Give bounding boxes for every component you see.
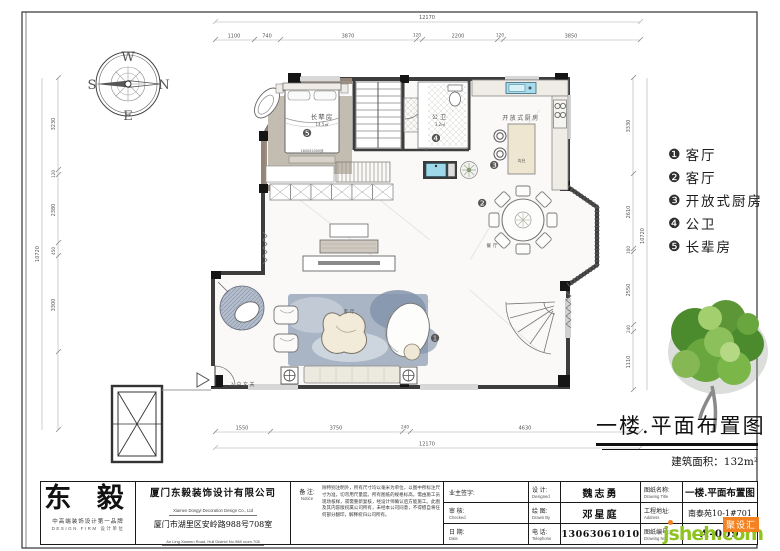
project-address-label: 工程地址:	[644, 506, 682, 515]
watermark-badge: 聚设汇	[723, 517, 759, 532]
elevator	[112, 386, 211, 462]
telephone-label: 电 话:	[532, 527, 560, 536]
dim-bottom-seg: 4630	[519, 426, 532, 432]
dim-left-seg: 3230	[51, 118, 57, 131]
kitchen-island: 岛台	[508, 124, 535, 174]
room-legend: ❶ 客厅 ❷ 客厅 ❸ 开放式厨房 ❹ 公卫 ❺ 长辈房	[668, 146, 763, 261]
firm-logo-cell: 东 毅 中高端装饰设计第一品牌 DESIGN FIRM 设计单位	[41, 482, 136, 544]
dim-right-total: 10720	[640, 228, 646, 244]
notice-text: 除特别注明外，所有尺寸均以毫米为单位，以图中所标注尺寸为准，切勿用尺量度。所有图…	[320, 485, 440, 541]
title-block: 东 毅 中高端装饰设计第一品牌 DESIGN FIRM 设计单位 厦门东毅装饰设…	[40, 481, 758, 545]
drawing-title-block: 一楼.平面布置图 建筑面积：132m²	[596, 410, 758, 469]
room-label-living: 客厅	[344, 308, 357, 315]
watermark-dot-icon	[668, 520, 673, 525]
dim-left-seg: 450	[51, 247, 56, 255]
legend-item: ❶ 客厅	[668, 146, 763, 162]
room-label-dining: 餐厅	[487, 242, 500, 249]
dim-left-seg: 120	[51, 170, 56, 178]
dim-left-seg: 2380	[51, 204, 57, 217]
toilet	[448, 85, 462, 106]
legend-number-icon: ❷	[668, 170, 681, 184]
dim-top-seg: 740	[262, 34, 272, 40]
firm-logo: 东 毅	[41, 484, 135, 514]
notice-cell: 备 注: Notice 除特别注明外，所有尺寸均以毫米为单位，以图中所标注尺寸为…	[291, 482, 444, 544]
drawing-title-label-en: Drawing Title	[644, 494, 682, 499]
notice-label: 备 注:	[294, 487, 320, 496]
title-rule-thin	[602, 449, 758, 450]
legend-item: ❺ 长辈房	[668, 238, 763, 254]
room-label-foyer: 入户玄关	[230, 381, 256, 388]
nightstand	[276, 84, 283, 93]
drawing-sheet: W S N E 12170 1100 740 3870 120 2200 120…	[0, 0, 780, 551]
stove	[554, 100, 567, 128]
compass-rose: W S N E	[88, 50, 170, 124]
designer-label: 设 计:	[532, 485, 560, 494]
checked-label-en: Checked	[449, 515, 466, 520]
compass-needle-south	[96, 81, 128, 88]
dim-right-seg: 240	[626, 325, 631, 333]
compass-n: N	[158, 78, 169, 93]
legend-number-icon: ❶	[668, 147, 681, 161]
drafter-label-en: Drawn By	[532, 515, 560, 520]
firm-tagline: 中高端装饰设计第一品牌	[41, 517, 135, 525]
dim-right-seg: 100	[626, 246, 631, 254]
marker-5: ❺	[302, 127, 312, 140]
marker-1: ❶	[430, 332, 440, 345]
company-address: 厦门市湖里区安岭路988号708室	[136, 519, 290, 530]
room-label-bath: 公卫	[432, 114, 448, 121]
plant-decor	[461, 162, 478, 179]
building-area: 建筑面积：132m²	[596, 454, 758, 469]
dim-bottom-total: 12170	[419, 442, 435, 448]
legend-number-icon: ❺	[668, 239, 681, 253]
watermark: jsheh.com 聚设汇	[655, 515, 765, 547]
firm-subtitle: DESIGN FIRM 设计单位	[41, 526, 135, 532]
dim-right-seg: 3330	[626, 120, 632, 133]
dim-right-seg: 2610	[626, 206, 632, 219]
lounge-sofa	[322, 312, 367, 353]
signature-cell: 业主签字: 审 核: Checked 日 期: Date	[444, 482, 529, 544]
bed-bench	[289, 156, 335, 163]
entry-arrow	[197, 373, 209, 387]
company-name-en: Xiamen Dongyi Decoration Design Co., Ltd	[169, 508, 257, 516]
bed-size-label: 1800X2000床	[301, 148, 325, 153]
designer-label-en: Designed	[532, 494, 560, 499]
legend-label: 开放式厨房	[686, 190, 764, 210]
legend-item: ❸ 开放式厨房	[668, 192, 763, 208]
dim-bottom-seg: 1550	[236, 426, 249, 432]
legend-item: ❹ 公卫	[668, 215, 763, 231]
date-label: 日 期:	[449, 527, 464, 536]
compass-s: S	[88, 78, 97, 93]
staircase	[356, 82, 401, 148]
dim-left-total: 10720	[35, 246, 41, 262]
drawing-title-value: 一楼.平面布置图	[683, 482, 757, 502]
compass-e: E	[123, 109, 133, 124]
dim-bottom-seg: 3750	[330, 426, 343, 432]
page-title: 一楼.平面布置图	[596, 410, 758, 440]
dim-left-seg: 3300	[51, 299, 57, 312]
dim-top-seg: 120	[413, 33, 421, 38]
telephone-number: 13063061010	[561, 524, 640, 544]
staff-cell: 设 计: Designed 魏志勇 绘 图: Drawn By 邓星庭 电 话:…	[529, 482, 641, 544]
legend-item: ❷ 客厅	[668, 169, 763, 185]
dim-top-seg: 1100	[228, 34, 241, 40]
island-label: 岛台	[518, 157, 526, 163]
notice-label-en: Notice	[294, 496, 320, 501]
owner-signature-label: 业主签字:	[449, 488, 475, 497]
legend-label: 公卫	[686, 213, 717, 233]
room-label-elder: 长辈房	[311, 112, 334, 121]
company-address-en: An Ling Xiamen Road, Huli District No.98…	[162, 539, 263, 546]
legend-label: 客厅	[686, 144, 717, 164]
title-rule	[596, 443, 758, 446]
marker-4: ❹	[431, 132, 441, 145]
drawing-title-label: 图纸名称:	[644, 485, 682, 494]
company-name: 厦门东毅装饰设计有限公司	[136, 485, 290, 499]
dim-right-seg: 2550	[626, 284, 632, 297]
drafter-name: 邓星庭	[561, 503, 640, 523]
cabinet-row	[266, 162, 393, 200]
date-label-en: Date	[449, 536, 458, 541]
dim-top-seg: 120	[496, 33, 504, 38]
dim-right-seg: 1110	[626, 356, 632, 369]
legend-label: 长辈房	[686, 236, 733, 256]
marker-3: ❸	[489, 159, 499, 172]
dim-top-seg: 3850	[565, 34, 578, 40]
dim-top-seg: 3870	[342, 34, 355, 40]
checked-label: 审 核:	[449, 506, 464, 515]
dim-top-seg: 2200	[452, 34, 465, 40]
compass-w: W	[121, 50, 135, 65]
nightstand	[341, 84, 348, 93]
dim-bottom-seg: 240	[401, 425, 409, 430]
room-label-kitchen: 开放式厨房	[502, 114, 540, 122]
dim-top-total: 12170	[419, 15, 435, 21]
company-cell: 厦门东毅装饰设计有限公司 Xiamen Dongyi Decoration De…	[136, 482, 291, 544]
kitchen-sink	[506, 83, 536, 94]
vanity	[423, 161, 478, 179]
legend-number-icon: ❹	[668, 216, 681, 230]
legend-number-icon: ❸	[668, 193, 681, 207]
designer-name: 魏志勇	[561, 482, 640, 502]
room-area-bath: 3.2㎡	[435, 121, 445, 127]
room-area-elder: 14.5㎡	[316, 121, 329, 127]
drafter-label: 绘 图:	[532, 506, 560, 515]
telephone-label-en: Telephone	[532, 536, 560, 541]
legend-label: 客厅	[686, 167, 717, 187]
marker-2: ❷	[477, 197, 487, 210]
